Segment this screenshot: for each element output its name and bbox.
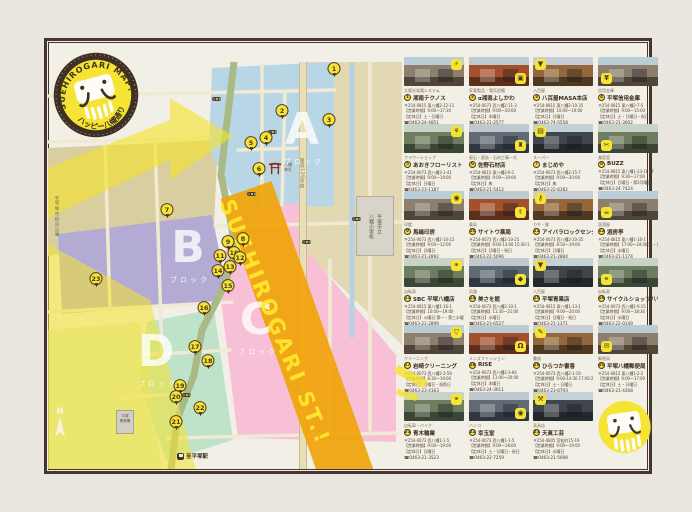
traffic-signal-icon [302, 240, 311, 244]
photo-base [533, 211, 593, 220]
shop-photo: ✉ [598, 325, 658, 354]
photo-sky [598, 258, 658, 266]
photo-window [415, 136, 431, 149]
shop-name-line: 6佐野石材店 [469, 161, 529, 169]
mascot [596, 396, 654, 464]
shop-info: 自転車13SBC 平塚八幡店〒254-0815 東八幡1-16-1【営業時間】1… [404, 287, 464, 327]
shop-name-line: 3八百屋MASA本店 [533, 94, 593, 102]
shop-info: 美容室8BUZZ〒254-0815 東八幡1-23-16 1F【営業時間】9:3… [598, 153, 658, 192]
photo-window [415, 404, 431, 417]
map-pin-6: 6 [253, 162, 266, 175]
torii-icon [268, 162, 282, 175]
shop-name-line: 19ひらつか書香 [533, 362, 593, 370]
shop-category: 書道 [533, 356, 593, 361]
police-label-1: 平塚 [121, 414, 128, 418]
map-pin-18: 18 [202, 354, 215, 367]
shop-category: メンズファッション [469, 356, 529, 361]
photo-sky [598, 191, 658, 199]
shop-category: カギ・錠 [533, 222, 593, 227]
shop-name-line: 5あおきフローリスト [404, 161, 464, 169]
shop-category: 墓石・墓誌・石材工事一式 [469, 155, 529, 160]
shop-card: ♜墓石・墓誌・石材工事一式6佐野石材店〒254-0815 東八幡2-6-1【営業… [469, 124, 529, 188]
shop-category: 美容室 [598, 155, 658, 160]
shop-card: ⚕薬局10サイトウ薬局〒254-0073 西八幡2-10-25【営業時間】9:0… [469, 191, 529, 255]
shop-name-line: 17岩崎クリーニング [404, 362, 464, 370]
shop-number-badge: 15 [533, 295, 540, 302]
flower-icon: ⚘ [451, 126, 462, 137]
shop-photo: ▼ [533, 57, 593, 86]
shop-number-badge: 11 [533, 228, 540, 235]
map-pin-4: 4 [260, 131, 273, 144]
shop-card: ◉印鑑9馬嶋印房〒254-0073 西八幡2-10-22【営業時間】9:00〜1… [404, 191, 464, 255]
train-icon [177, 453, 184, 460]
shop-name-line: 11アイバラロックセンター [533, 228, 593, 236]
shop-number-badge: 6 [469, 161, 476, 168]
shop-name-line: 7まじめや [533, 161, 593, 169]
photo-sky [598, 57, 658, 65]
block-sub-b: ブロック [170, 275, 210, 285]
photo-window [632, 270, 648, 283]
photo-window [415, 69, 431, 82]
map-pin-1: 1 [328, 62, 341, 75]
shop-info: スーパー7まじめや〒254-0073 西八幡2-15-7【営業時間】9:00〜2… [533, 153, 593, 193]
shop-name: 湘南テクノス [413, 94, 446, 102]
shop-photo: ▣ [469, 57, 529, 86]
traffic-signal-icon [247, 192, 256, 196]
map-pin-13: 13 [224, 260, 237, 273]
shop-photo: ◉ [404, 191, 464, 220]
shop-category: 家電製品・電気設備 [469, 88, 529, 93]
shop-card: ✎書道19ひらつか書香〒254-0073 西八幡2-1-19【営業時間】9:00… [533, 325, 593, 389]
shop-category: ハンコ [469, 423, 529, 428]
shop-phone: ☎0463-21-3523 [404, 455, 464, 461]
shop-number-badge: 19 [533, 362, 540, 369]
shop-name-line: 4平塚信用金庫 [598, 94, 658, 102]
block-letter-d: D [138, 330, 175, 374]
shop-photo: ♜ [469, 124, 529, 153]
shop-category: 郵便局 [598, 356, 658, 361]
photo-base [533, 77, 593, 86]
photo-window [632, 69, 648, 82]
photo-sky [469, 258, 529, 266]
shop-card: ◆呉服14美さを館〒254-0073 西八幡2-10-1【営業時間】11:30〜… [469, 258, 529, 322]
photo-base [404, 278, 464, 287]
traffic-signal-icon [182, 393, 191, 397]
photo-sky [469, 191, 529, 199]
photo-window [438, 69, 454, 82]
shop-number-badge: 21 [404, 429, 411, 436]
photo-base [533, 278, 593, 287]
shop-name: あおきフローリスト [413, 161, 463, 169]
shop-card: ⚭自転車13SBC 平塚八幡店〒254-0815 東八幡1-16-1【営業時間】… [404, 258, 464, 322]
shop-photo: ⚒ [533, 392, 593, 421]
photo-sky [469, 124, 529, 132]
station-marker: 至平塚駅 [177, 452, 208, 460]
shop-info: 呉服14美さを館〒254-0073 西八幡2-10-1【営業時間】11:30〜2… [469, 287, 529, 327]
key-icon: ⚷ [535, 193, 546, 204]
shrine-marker: 八幡神社 [268, 162, 294, 175]
shop-category: 信用金庫 [598, 88, 658, 93]
map-pin-16: 16 [198, 301, 211, 314]
shop-category: 居酒屋 [598, 222, 658, 227]
shop-name-line: 15平塚青果店 [533, 295, 593, 303]
photo-window [632, 203, 648, 216]
shop-photo: ⚭ [404, 258, 464, 287]
shop-category: 自転車・バイク [404, 423, 464, 428]
shop-name-line: 21青木輪業 [404, 429, 464, 437]
suehirogari-map-poster: { "logo": { "arc_top": "SUEHIROGARI MAP!… [0, 0, 692, 512]
to-station-label: 至平塚駅 [186, 452, 208, 460]
shop-number-badge: 10 [469, 228, 476, 235]
shop-number-badge: 4 [598, 94, 605, 101]
map-pin-2: 2 [276, 104, 289, 117]
shop-category: スーパー [533, 155, 593, 160]
shop-card: Ωメンズファッション18RISE〒254-0073 西八幡2-3-64【営業時間… [469, 325, 529, 389]
photo-base [404, 345, 464, 354]
shop-name: 天眞工芸 [542, 429, 564, 437]
shop-number-badge: 16 [598, 295, 605, 302]
shop-category: 表具店 [533, 423, 593, 428]
shop-number-badge: 12 [598, 228, 605, 235]
map-pin-14: 14 [212, 264, 225, 277]
shop-number-badge: 7 [533, 161, 540, 168]
shop-number-badge: 18 [469, 362, 476, 369]
shop-photo: ⚷ [533, 191, 593, 220]
shop-number-badge: 8 [598, 161, 605, 168]
shop-info: 墓石・墓誌・石材工事一式6佐野石材店〒254-0815 東八幡2-6-1【営業時… [469, 153, 529, 193]
shop-name: アイバラロックセンター [542, 228, 593, 236]
shop-name-line: 12酒房亭 [598, 228, 658, 236]
shop-name: BUZZ [607, 161, 624, 167]
shop-card: ◉ハンコ22幸玉堂〒254-0073 西八幡1-1-5【営業時間】9:00〜18… [469, 392, 529, 456]
shirt-icon: ▽ [451, 327, 462, 338]
photo-window [567, 136, 583, 149]
carrot-icon: ▼ [535, 260, 546, 271]
shop-photo: ⚭ [598, 258, 658, 287]
cloth-icon: ◆ [515, 274, 526, 285]
shop-card: ⚭自転車16サイクルショップ八千代〒254-0073 西八幡1-9-15【営業時… [598, 258, 658, 322]
bicycle-icon: ⚭ [601, 274, 612, 285]
to-park-label: 至平塚市総合公園 [53, 196, 59, 237]
shop-name: まじめや [542, 161, 564, 169]
shop-card: ▼八百屋3八百屋MASA本店〒254-0815 東八幡2-10-35【営業時間】… [533, 57, 593, 121]
shop-card: ¥信用金庫4平塚信用金庫〒254-0815 東八幡2-7-5【営業時間】9:00… [598, 57, 658, 121]
shop-name-line: 14美さを館 [469, 295, 529, 303]
cart-icon: ▤ [535, 126, 546, 137]
shop-category: 呉服 [469, 289, 529, 294]
photo-window [567, 404, 583, 417]
shop-card: ⚒表具店23天眞工芸〒254-0805 宮松町15-19【営業時間】9:00〜1… [533, 392, 593, 456]
shop-number-badge: 2 [469, 94, 476, 101]
shop-phone: ☎0463-21-5098 [533, 455, 593, 461]
map-pin-21: 21 [170, 415, 183, 428]
photo-window [567, 337, 583, 350]
police-building: 平塚 警察署 [116, 410, 134, 434]
photo-window [480, 337, 496, 350]
shop-category: 印鑑 [404, 222, 464, 227]
shrine-label: 八幡神社 [284, 162, 294, 175]
photo-window [544, 404, 560, 417]
shop-name: 幸玉堂 [478, 429, 495, 437]
photo-window [544, 270, 560, 283]
school-label-1: 平塚市立 [376, 214, 382, 234]
shop-phone: ☎0463-21-4308 [598, 388, 658, 394]
carrot-icon: ▼ [535, 59, 546, 70]
shop-name: 平塚信用金庫 [607, 94, 640, 102]
photo-window [544, 136, 560, 149]
shop-photo: ✎ [533, 325, 593, 354]
shop-info: 家電製品・電気設備2α湘南よしかわ〒254-0073 西八幡2-11-3【営業時… [469, 86, 529, 126]
shop-info: 居酒屋12酒房亭〒254-0815 東八幡1-16-1【営業時間】17:00〜2… [598, 220, 658, 260]
shop-info: 八百屋15平塚青果店〒254-0815 東八幡1-13-1【営業時間】9:00〜… [533, 287, 593, 327]
shop-number-badge: 1 [404, 94, 411, 101]
map-pin-17: 17 [189, 340, 202, 353]
shop-info: メンズファッション18RISE〒254-0073 西八幡2-3-64【営業時間】… [469, 354, 529, 393]
shop-photo: ✂ [598, 124, 658, 153]
shop-photo: ⚘ [404, 124, 464, 153]
shop-card: ⚘フラワーショップ5あおきフローリスト〒254-0073 西八幡3-1-41【営… [404, 124, 464, 188]
shop-category: 八百屋 [533, 88, 593, 93]
map-pin-23: 23 [90, 272, 103, 285]
shop-info: フラワーショップ5あおきフローリスト〒254-0073 西八幡3-1-41【営業… [404, 153, 464, 193]
traffic-signal-icon [352, 217, 361, 221]
photo-base [533, 412, 593, 421]
shop-info: 印鑑9馬嶋印房〒254-0073 西八幡2-10-22【営業時間】9:00〜12… [404, 220, 464, 260]
shop-number-badge: 5 [404, 161, 411, 168]
map-pin-3: 3 [323, 113, 336, 126]
map-pin-5: 5 [245, 136, 258, 149]
map-pin-20: 20 [170, 390, 183, 403]
shop-name: 美さを館 [478, 295, 500, 303]
shop-photo: Ω [469, 325, 529, 354]
shop-name: サイトウ薬局 [478, 228, 511, 236]
plug-icon: ⚡ [451, 59, 462, 70]
shop-name-line: 20平塚八幡郵便局 [598, 362, 658, 370]
photo-sky [469, 57, 529, 65]
photo-window [438, 337, 454, 350]
stamp-icon: ◉ [515, 408, 526, 419]
shop-card: ⚭自転車・バイク21青木輪業〒254-0073 西八幡1-1-5【営業時間】9:… [404, 392, 464, 456]
block-letter-a: A [285, 108, 319, 152]
photo-window [480, 270, 496, 283]
photo-window [415, 270, 431, 283]
photo-window [544, 69, 560, 82]
shop-info: 自転車・バイク21青木輪業〒254-0073 西八幡1-1-5【営業時間】9:0… [404, 421, 464, 461]
shop-name-line: 16サイクルショップ八千代 [598, 295, 658, 303]
shop-info: カギ・錠11アイバラロックセンター〒254-0073 西八幡2-10-35【営業… [533, 220, 593, 260]
shop-card: ▼八百屋15平塚青果店〒254-0815 東八幡1-13-1【営業時間】9:00… [533, 258, 593, 322]
shop-info: 信用金庫4平塚信用金庫〒254-0815 東八幡2-7-5【営業時間】9:00〜… [598, 86, 658, 126]
map-pin-15: 15 [222, 279, 235, 292]
shop-number-badge: 23 [533, 429, 540, 436]
photo-window [632, 337, 648, 350]
photo-base [404, 144, 464, 153]
shop-category: 自転車 [598, 289, 658, 294]
photo-window [438, 270, 454, 283]
brush-icon: ✎ [535, 327, 546, 338]
envelope-icon: ✉ [601, 341, 612, 352]
north-compass: N [54, 408, 66, 443]
photo-window [438, 404, 454, 417]
tv-icon: ▣ [515, 73, 526, 84]
scissors-icon: ✂ [601, 140, 612, 151]
beer-icon: ☕ [601, 207, 612, 218]
photo-window [438, 203, 454, 216]
map-pin-7: 7 [161, 203, 174, 216]
shop-photo: ▽ [404, 325, 464, 354]
photo-base [404, 412, 464, 421]
photo-sky [598, 124, 658, 132]
photo-base [533, 345, 593, 354]
shop-photo: ⚡ [404, 57, 464, 86]
medicine-icon: ⚕ [515, 207, 526, 218]
photo-window [480, 136, 496, 149]
police-label-2: 警察署 [120, 419, 131, 423]
block-sub-d: ブロック [138, 379, 178, 389]
shop-name-line: 22幸玉堂 [469, 429, 529, 437]
stone-icon: ♜ [515, 140, 526, 151]
shop-number-badge: 22 [469, 429, 476, 436]
photo-window [544, 337, 560, 350]
highway-label: 国道129号線 [298, 158, 304, 189]
shop-category: クリーニング [404, 356, 464, 361]
shop-info: 郵便局20平塚八幡郵便局〒254-0815 東八幡1-2-2【営業時間】9:00… [598, 354, 658, 394]
traffic-signal-icon [212, 97, 221, 101]
photo-window [480, 203, 496, 216]
shop-name-line: 8BUZZ [598, 161, 658, 168]
shop-number-badge: 20 [598, 362, 605, 369]
shop-name: RISE [478, 362, 492, 368]
shop-name-line: 1湘南テクノス [404, 94, 464, 102]
shop-card: ☕居酒屋12酒房亭〒254-0815 東八幡1-16-1【営業時間】17:00〜… [598, 191, 658, 255]
photo-window [567, 270, 583, 283]
map-pin-11: 11 [214, 249, 227, 262]
shop-card: ⚷カギ・錠11アイバラロックセンター〒254-0073 西八幡2-10-35【営… [533, 191, 593, 255]
shop-category: 薬局 [469, 222, 529, 227]
shop-photo: ◉ [469, 392, 529, 421]
photo-window [632, 136, 648, 149]
shop-info: 薬局10サイトウ薬局〒254-0073 西八幡2-10-25【営業時間】9:00… [469, 220, 529, 260]
shop-name: ひらつか書香 [542, 362, 575, 370]
coin-icon: ¥ [601, 73, 612, 84]
shop-photo: ▼ [533, 258, 593, 287]
shop-photo: ◆ [469, 258, 529, 287]
north-letter: N [54, 408, 66, 417]
photo-sky [598, 325, 658, 333]
shop-name: サイクルショップ八千代 [607, 295, 658, 303]
shop-name: 酒房亭 [607, 228, 624, 236]
photo-window [480, 404, 496, 417]
shop-number-badge: 9 [404, 228, 411, 235]
shop-photo: ☕ [598, 191, 658, 220]
shop-info: 八百屋3八百屋MASA本店〒254-0815 東八幡2-10-35【営業時間】1… [533, 86, 593, 126]
shop-name: 平塚青果店 [542, 295, 570, 303]
map-pin-22: 22 [194, 401, 207, 414]
shop-name: 馬嶋印房 [413, 228, 435, 236]
hanger-icon: Ω [515, 341, 526, 352]
tools-icon: ⚒ [535, 394, 546, 405]
shop-info: 表具店23天眞工芸〒254-0805 宮松町15-19【営業時間】9:00〜19… [533, 421, 593, 461]
shop-category: 太陽光発電システム [404, 88, 464, 93]
shop-name-line: 18RISE [469, 362, 529, 369]
bicycle-icon: ⚭ [451, 260, 462, 271]
shop-phone: ☎0463-22-7259 [469, 455, 529, 461]
shop-name: α湘南よしかわ [478, 94, 515, 102]
school-building: 平塚市立 八幡小学校 [356, 196, 394, 256]
shop-name-line: 13SBC 平塚八幡店 [404, 295, 464, 303]
shop-name: 佐野石材店 [478, 161, 506, 169]
shop-number-badge: 13 [404, 295, 411, 302]
school-label-2: 八幡小学校 [368, 214, 374, 239]
shop-name-line: 10サイトウ薬局 [469, 228, 529, 236]
photo-window [415, 337, 431, 350]
shop-info: 太陽光発電システム1湘南テクノス〒254-0815 東八幡2-12-11【営業時… [404, 86, 464, 126]
photo-window [415, 203, 431, 216]
photo-base [404, 77, 464, 86]
shop-photo: ¥ [598, 57, 658, 86]
shop-number-badge: 14 [469, 295, 476, 302]
stamp-icon: ◉ [451, 193, 462, 204]
shop-number-badge: 3 [533, 94, 540, 101]
shop-card: ✂美容室8BUZZ〒254-0815 東八幡1-23-16 1F【営業時間】9:… [598, 124, 658, 188]
shop-name: 八百屋MASA本店 [542, 94, 587, 102]
photo-sky [469, 325, 529, 333]
shop-photo: ▤ [533, 124, 593, 153]
shop-name: 青木輪業 [413, 429, 435, 437]
shop-name-line: 23天眞工芸 [533, 429, 593, 437]
shop-category: 八百屋 [533, 289, 593, 294]
shop-card: ▤スーパー7まじめや〒254-0073 西八幡2-15-7【営業時間】9:00〜… [533, 124, 593, 188]
shop-name: SBC 平塚八幡店 [413, 295, 455, 303]
map-pin-8: 8 [237, 232, 250, 245]
photo-window [567, 69, 583, 82]
bicycle-icon: ⚭ [451, 394, 462, 405]
shop-name-line: 2α湘南よしかわ [469, 94, 529, 102]
photo-base [533, 144, 593, 153]
shop-name-line: 9馬嶋印房 [404, 228, 464, 236]
photo-sky [469, 392, 529, 400]
shop-category: 自転車 [404, 289, 464, 294]
shop-name: 平塚八幡郵便局 [607, 362, 646, 370]
photo-window [544, 203, 560, 216]
shop-category: フラワーショップ [404, 155, 464, 160]
shop-info: 書道19ひらつか書香〒254-0073 西八幡2-1-19【営業時間】9:00-… [533, 354, 593, 394]
photo-window [438, 136, 454, 149]
block-letter-b: B [171, 226, 205, 270]
photo-window [567, 203, 583, 216]
shop-card: ▣家電製品・電気設備2α湘南よしかわ〒254-0073 西八幡2-11-3【営業… [469, 57, 529, 121]
photo-base [404, 211, 464, 220]
shop-name: 岩崎クリーニング [413, 362, 457, 370]
compass-needle-icon [54, 417, 66, 439]
shop-photo: ⚕ [469, 191, 529, 220]
shop-info: 自転車16サイクルショップ八千代〒254-0073 西八幡1-9-15【営業時間… [598, 287, 658, 327]
shop-card: ✉郵便局20平塚八幡郵便局〒254-0815 東八幡1-2-2【営業時間】9:0… [598, 325, 658, 389]
shop-card: ⚡太陽光発電システム1湘南テクノス〒254-0815 東八幡2-12-11【営業… [404, 57, 464, 121]
shop-info: ハンコ22幸玉堂〒254-0073 西八幡1-1-5【営業時間】9:00〜18:… [469, 421, 529, 461]
photo-window [480, 69, 496, 82]
